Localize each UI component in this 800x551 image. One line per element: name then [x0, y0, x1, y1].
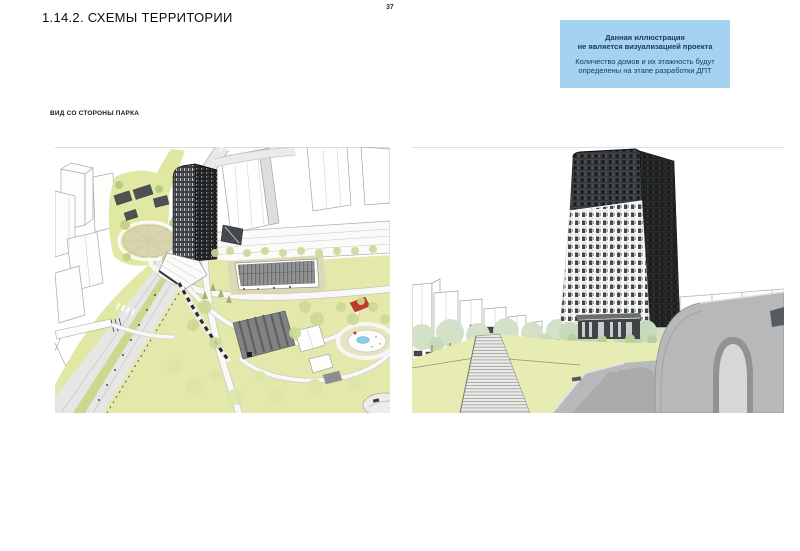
- community-building: [227, 255, 327, 295]
- site-plan-aerial-view: [55, 147, 390, 413]
- disclaimer-body-line-1: Количество домов и их этажность будут: [575, 57, 714, 66]
- disclaimer-heading-line-2: не является визуализацией проекта: [578, 42, 713, 51]
- page-number: 37: [386, 4, 394, 11]
- tower-building: [173, 164, 217, 261]
- tower-building: [560, 149, 680, 327]
- pond: [357, 337, 370, 344]
- disclaimer-box: Данная иллюстрация не является визуализа…: [560, 20, 730, 88]
- document-page: 1.14.2. СХЕМЫ ТЕРРИТОРИИ 37 Данная иллюс…: [0, 0, 800, 551]
- disclaimer-body-line-2: определены на этапе разработки ДПТ: [575, 66, 714, 75]
- site-plan-illustration: [55, 147, 390, 413]
- disclaimer-body: Количество домов и их этажность будут оп…: [575, 57, 714, 75]
- page-title: 1.14.2. СХЕМЫ ТЕРРИТОРИИ: [42, 10, 233, 25]
- disclaimer-heading-line-1: Данная иллюстрация: [578, 33, 713, 42]
- disclaimer-heading: Данная иллюстрация не является визуализа…: [578, 33, 713, 51]
- street-view-illustration: [412, 147, 784, 413]
- view-label: ВИД СО СТОРОНЫ ПАРКА: [50, 110, 139, 117]
- street-level-view: [412, 147, 784, 413]
